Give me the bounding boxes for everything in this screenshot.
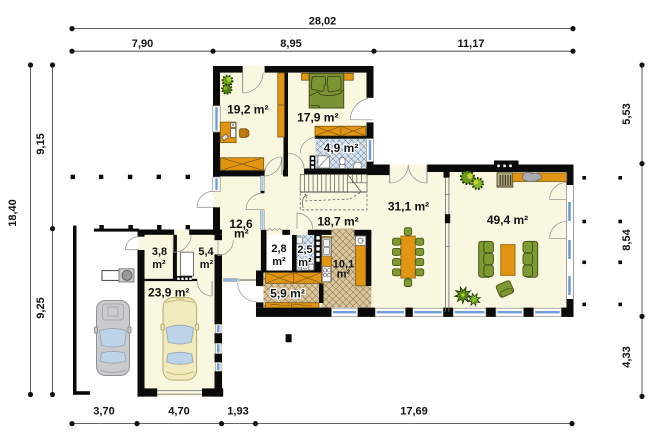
svg-text:28,02: 28,02	[309, 16, 337, 28]
svg-text:17,9 m²: 17,9 m²	[297, 110, 338, 124]
svg-text:m²: m²	[234, 226, 249, 240]
svg-text:3,70: 3,70	[93, 406, 114, 418]
svg-text:4,70: 4,70	[168, 406, 189, 418]
svg-text:17,69: 17,69	[400, 406, 428, 418]
svg-text:2,5: 2,5	[297, 244, 312, 256]
svg-text:4,33: 4,33	[621, 346, 633, 367]
svg-text:m²: m²	[152, 259, 166, 271]
svg-text:19,2 m²: 19,2 m²	[227, 102, 268, 116]
svg-text:5,9 m²: 5,9 m²	[270, 286, 305, 300]
svg-text:5,4: 5,4	[198, 246, 214, 258]
svg-text:m²: m²	[272, 256, 286, 268]
svg-text:18,7 m²: 18,7 m²	[317, 214, 358, 228]
svg-text:m²: m²	[298, 257, 312, 269]
svg-text:m²: m²	[337, 269, 351, 281]
svg-text:7,90: 7,90	[132, 38, 153, 50]
svg-text:49,4 m²: 49,4 m²	[487, 213, 528, 227]
svg-text:3,8: 3,8	[152, 246, 167, 258]
svg-text:18,40: 18,40	[7, 199, 19, 227]
svg-text:11,17: 11,17	[458, 38, 485, 50]
svg-text:9,15: 9,15	[35, 133, 47, 154]
svg-text:8,54: 8,54	[621, 228, 633, 250]
svg-text:5,53: 5,53	[621, 103, 633, 124]
svg-text:1,93: 1,93	[227, 406, 248, 418]
svg-text:23,9 m²: 23,9 m²	[148, 286, 189, 300]
svg-text:4,9 m²: 4,9 m²	[324, 141, 359, 155]
svg-text:m²: m²	[200, 259, 214, 271]
svg-text:2,8: 2,8	[271, 243, 286, 255]
svg-text:31,1 m²: 31,1 m²	[388, 199, 429, 213]
svg-text:9,25: 9,25	[35, 297, 47, 318]
svg-text:8,95: 8,95	[280, 38, 301, 50]
